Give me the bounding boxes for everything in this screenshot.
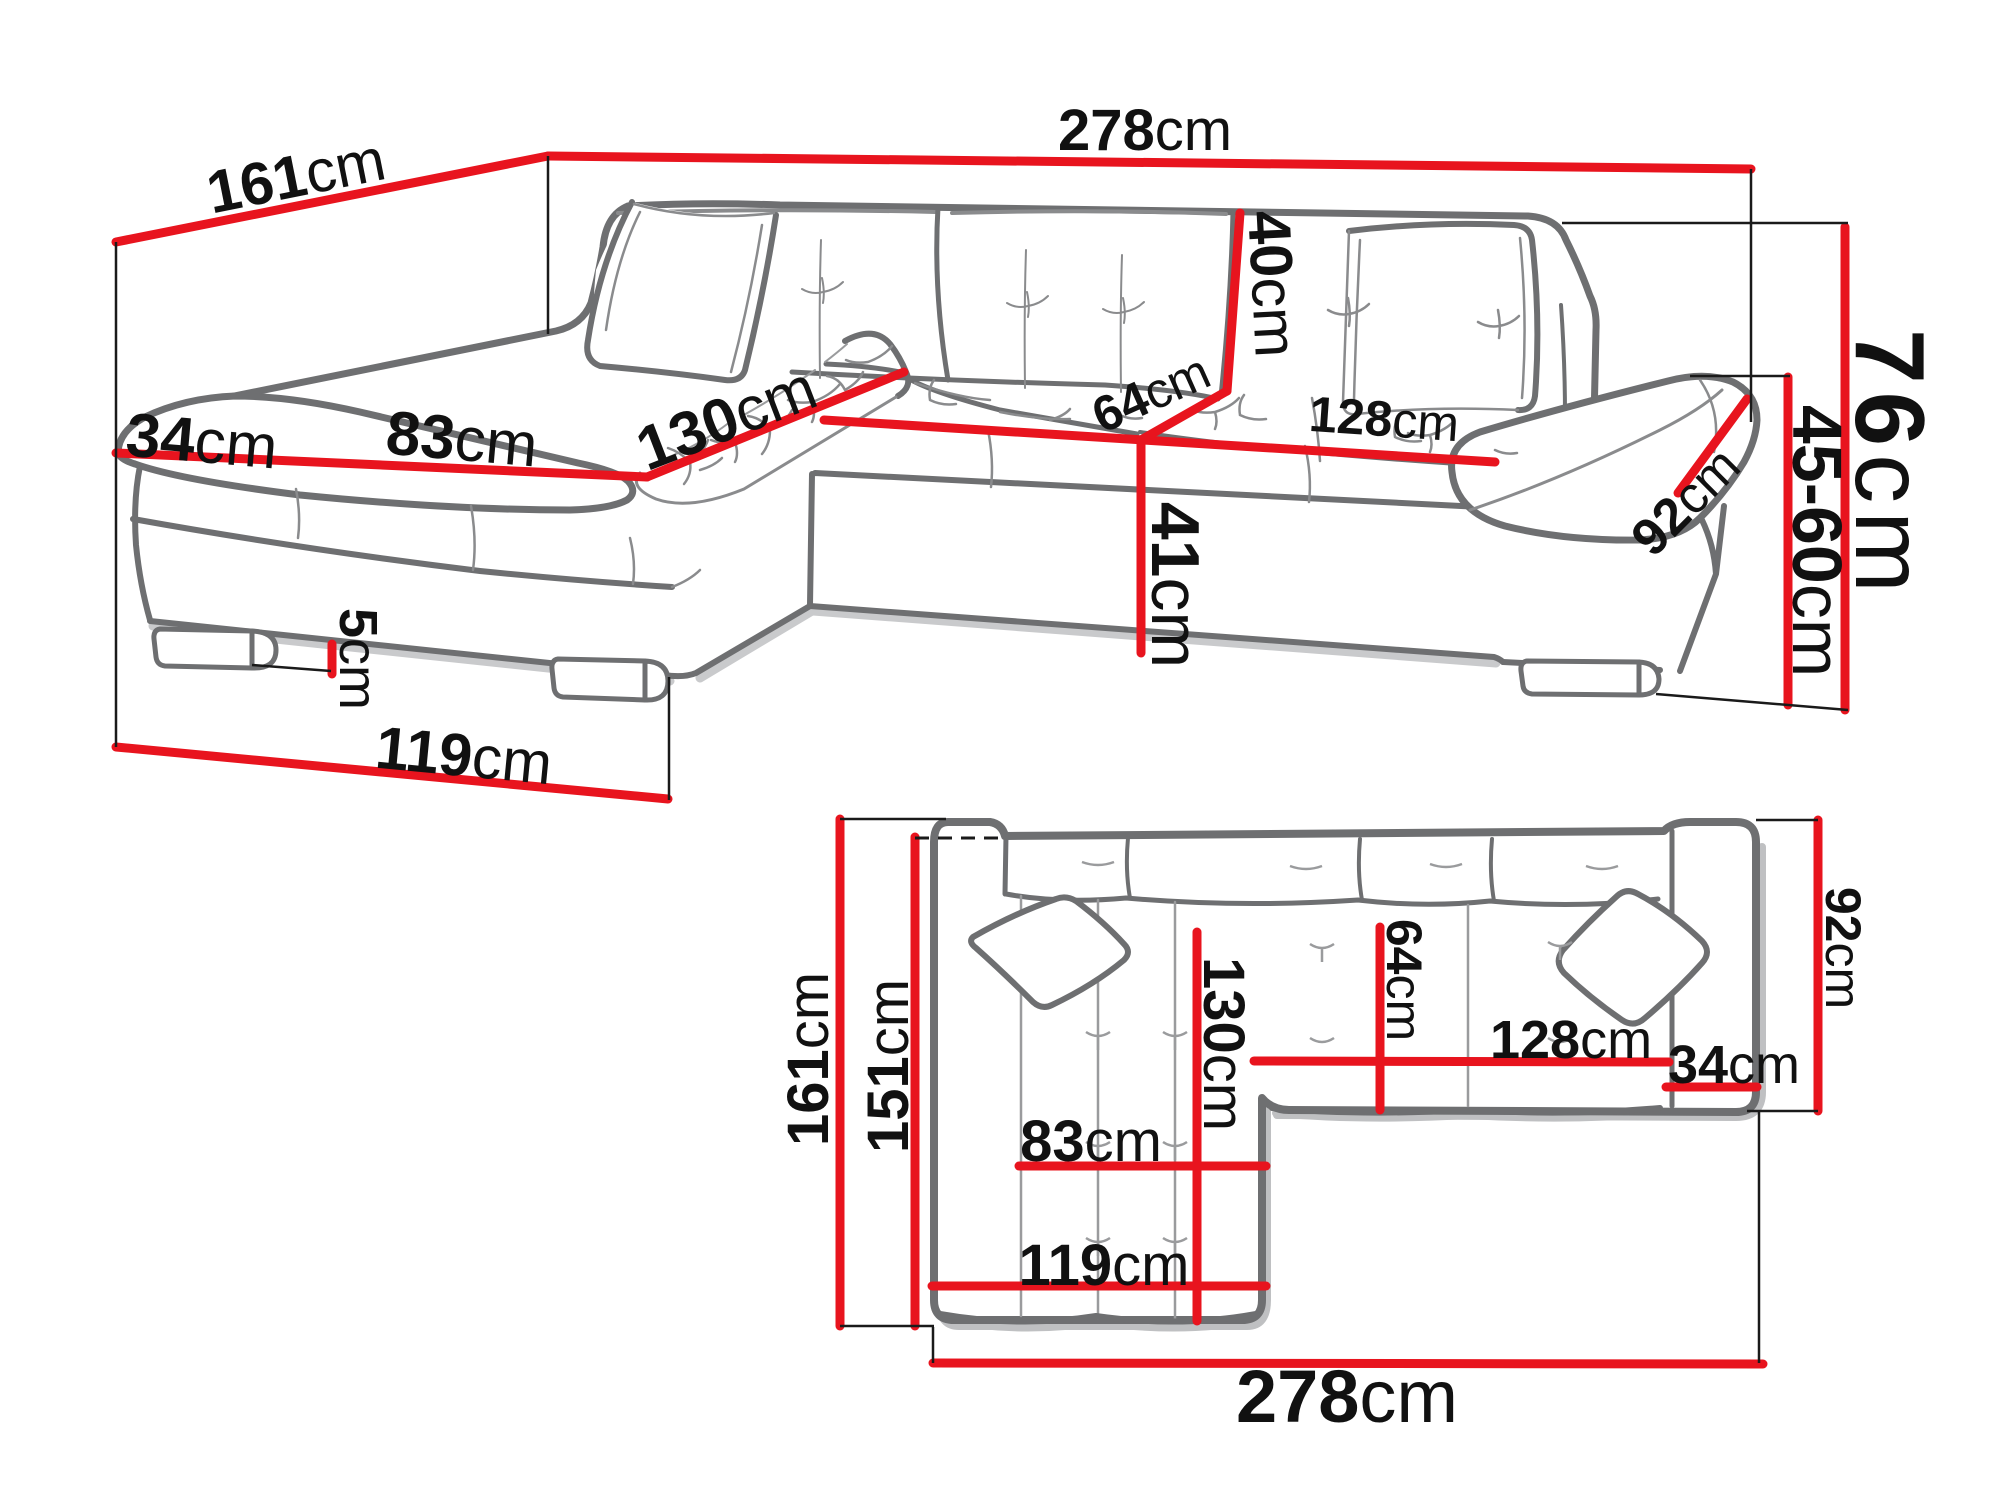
svg-text:92cm: 92cm bbox=[1815, 887, 1871, 1009]
svg-text:34cm: 34cm bbox=[123, 401, 280, 483]
svg-text:161cm: 161cm bbox=[776, 972, 841, 1146]
svg-text:119cm: 119cm bbox=[1019, 1233, 1190, 1298]
svg-text:41cm: 41cm bbox=[1137, 502, 1213, 668]
svg-text:128cm: 128cm bbox=[1307, 386, 1461, 452]
svg-text:130cm: 130cm bbox=[1191, 957, 1256, 1131]
svg-text:278cm: 278cm bbox=[1236, 1355, 1458, 1438]
svg-text:128cm: 128cm bbox=[1490, 1010, 1652, 1070]
svg-text:45-60cm: 45-60cm bbox=[1778, 405, 1856, 677]
svg-text:64cm: 64cm bbox=[1376, 919, 1432, 1041]
svg-text:5cm: 5cm bbox=[328, 608, 388, 710]
svg-text:83cm: 83cm bbox=[383, 399, 540, 481]
svg-text:34cm: 34cm bbox=[1668, 1035, 1800, 1095]
svg-text:278cm: 278cm bbox=[1058, 98, 1232, 163]
svg-text:151cm: 151cm bbox=[856, 979, 921, 1153]
svg-text:83cm: 83cm bbox=[1020, 1109, 1162, 1174]
svg-text:40cm: 40cm bbox=[1235, 209, 1310, 359]
